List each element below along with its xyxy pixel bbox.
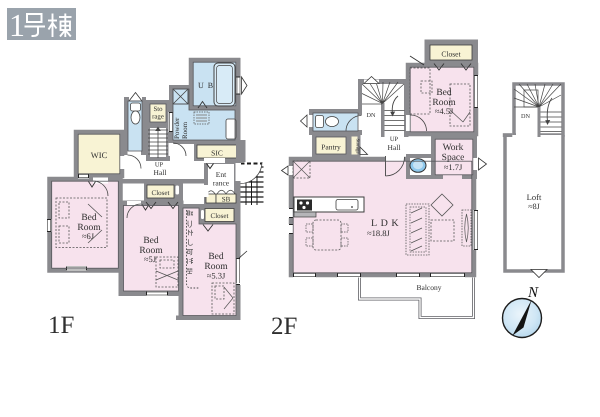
svg-text:DN: DN (521, 113, 530, 120)
svg-text:Hall: Hall (388, 143, 401, 152)
svg-text:Room: Room (181, 121, 189, 139)
svg-text:Hall: Hall (154, 168, 167, 177)
svg-text:UP: UP (390, 136, 399, 143)
svg-text:Balcony: Balcony (417, 283, 442, 292)
svg-text:Closet: Closet (441, 50, 461, 59)
svg-text:1F: 1F (48, 312, 74, 339)
svg-text:≈5J: ≈5J (144, 254, 157, 264)
svg-text:Work: Work (443, 143, 464, 153)
svg-text:Bed: Bed (81, 213, 97, 223)
svg-text:Closet: Closet (211, 212, 229, 220)
svg-text:N: N (527, 285, 539, 301)
svg-text:SB: SB (222, 196, 231, 204)
svg-text:rage: rage (152, 114, 164, 121)
svg-text:Bed: Bed (436, 88, 452, 98)
svg-text:Powder: Powder (173, 117, 181, 139)
svg-text:SIC: SIC (211, 149, 223, 158)
svg-text:≈18.8J: ≈18.8J (367, 228, 391, 238)
svg-text:≈1.7J: ≈1.7J (444, 162, 463, 172)
svg-text:2F: 2F (271, 313, 297, 340)
svg-text:Loft: Loft (527, 192, 542, 202)
svg-text:Bed: Bed (143, 236, 159, 246)
svg-text:rance: rance (213, 179, 230, 188)
svg-text:Sto: Sto (153, 106, 163, 113)
svg-text:Pantry: Pantry (321, 143, 341, 152)
svg-text:U B: U B (198, 81, 214, 90)
svg-text:≈8J: ≈8J (528, 202, 540, 211)
svg-text:≈5.3J: ≈5.3J (207, 271, 226, 281)
svg-text:Closet: Closet (152, 189, 170, 197)
svg-text:≈6J: ≈6J (82, 231, 95, 241)
svg-text:WIC: WIC (91, 150, 108, 160)
svg-text:1: 1 (9, 7, 25, 43)
svg-text:Bed: Bed (208, 252, 224, 262)
svg-text:≈4.5J: ≈4.5J (435, 106, 454, 116)
svg-text:DN: DN (367, 112, 376, 119)
